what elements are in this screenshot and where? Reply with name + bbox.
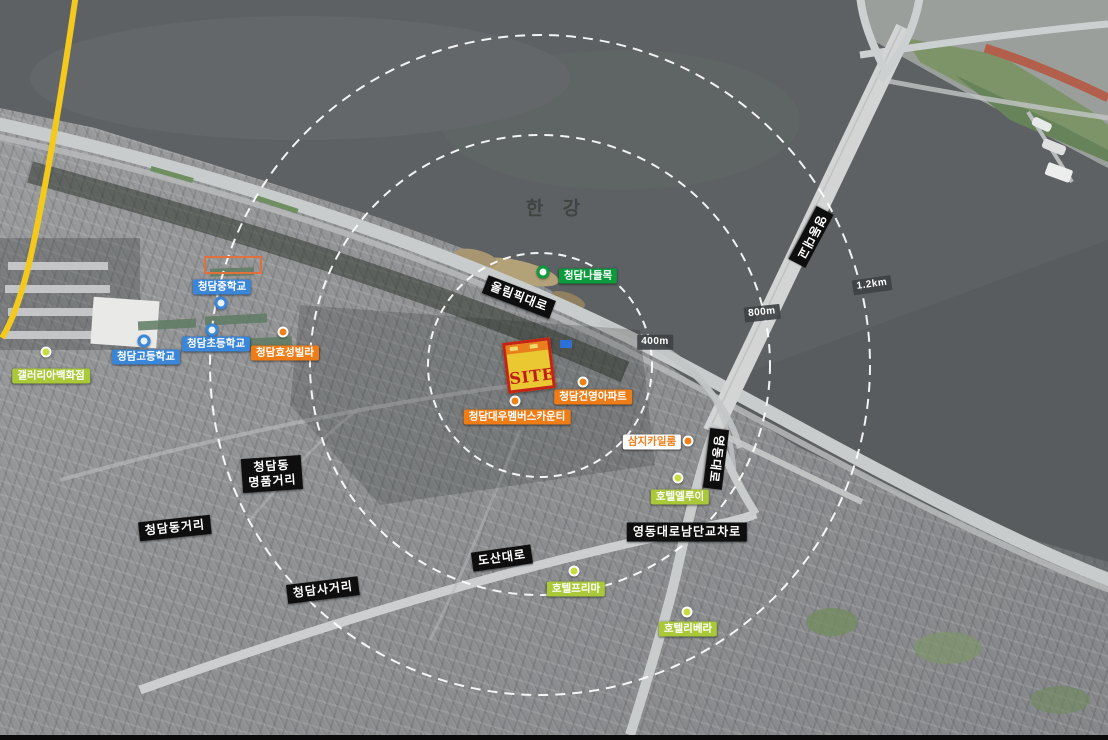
blue-building-icon: [560, 340, 572, 348]
label-hotel-riviera: 호텔리베라: [659, 621, 717, 636]
dot-sangji-kailum: [683, 436, 694, 447]
label-sangji-kailum: 삼지카일룸: [623, 434, 681, 449]
dot-middle-school: [215, 297, 228, 310]
label-kunyoung-apt: 청담건영아파트: [554, 389, 632, 404]
ring-label-400m: 400m: [637, 335, 673, 350]
label-cheongdam-middle-school: 청담중학교: [193, 279, 251, 294]
road-label-luxury-street: 청담동 명품거리: [241, 455, 303, 493]
road-label-yeongdong-south-junction: 영동대로남단교차로: [627, 523, 747, 542]
label-hotel-ellui: 호텔엘루이: [651, 489, 709, 504]
yeongdong-daero-road: [630, 425, 716, 735]
river-label: 한 강: [519, 194, 587, 221]
scan-edge-bar: [0, 735, 1108, 740]
dot-hotel-ellui: [673, 473, 684, 484]
label-cheongdam-interchange: 청담나들목: [559, 268, 617, 283]
label-cheongdam-elementary-school: 청담초등학교: [182, 336, 250, 351]
dot-kunyoung-apt: [578, 377, 589, 388]
dot-hotel-riviera: [682, 607, 693, 618]
site-marker-label: SITE: [508, 364, 552, 388]
dot-hyosung-villa: [278, 327, 289, 338]
label-galleria-dept-store: 갤러리아백화점: [12, 368, 90, 383]
site-marker: SITE: [502, 337, 556, 393]
school-building-outline: [204, 256, 262, 274]
label-cheongdam-high-school: 청담고등학교: [112, 349, 180, 364]
luxury-street-line2: 명품거리: [248, 472, 297, 490]
dot-elementary-school: [206, 324, 219, 337]
label-hyosung-villa: 청담효성빌라: [251, 345, 319, 360]
dot-galleria: [41, 347, 52, 358]
label-daewoo-members-county: 청담대우멤버스카운티: [464, 409, 571, 424]
aerial-site-map: SITE 한 강 올림픽대로 영동대교 영동대로 도산대로 영동대로남단교차로 …: [0, 0, 1108, 740]
dot-cheongdam-interchange: [537, 266, 550, 279]
dot-daewoo-members-county: [510, 396, 521, 407]
dot-hotel-prima: [569, 566, 580, 577]
dot-high-school: [138, 335, 151, 348]
label-hotel-prima: 호텔프리마: [547, 581, 605, 596]
site-marker-strip: [505, 341, 548, 355]
satellite-base-art: [0, 0, 1108, 740]
